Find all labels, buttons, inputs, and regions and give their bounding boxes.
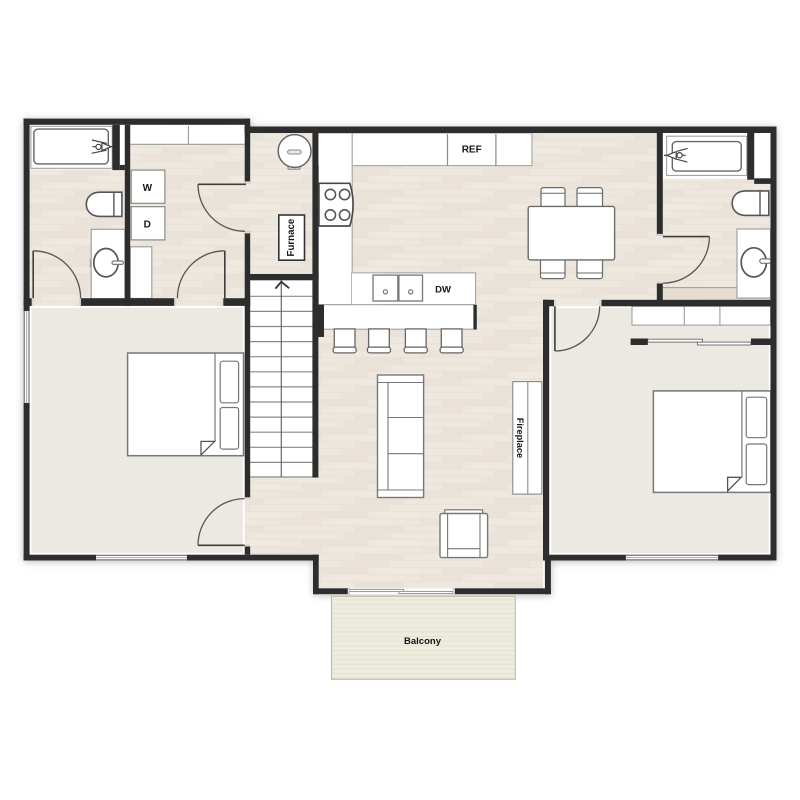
svg-text:Fireplace: Fireplace [515, 418, 525, 458]
svg-text:DW: DW [435, 285, 451, 296]
svg-text:REF: REF [462, 144, 482, 155]
svg-text:W: W [143, 183, 153, 194]
svg-text:Furnace: Furnace [286, 218, 297, 256]
svg-text:Balcony: Balcony [404, 636, 442, 647]
svg-text:D: D [144, 220, 151, 231]
